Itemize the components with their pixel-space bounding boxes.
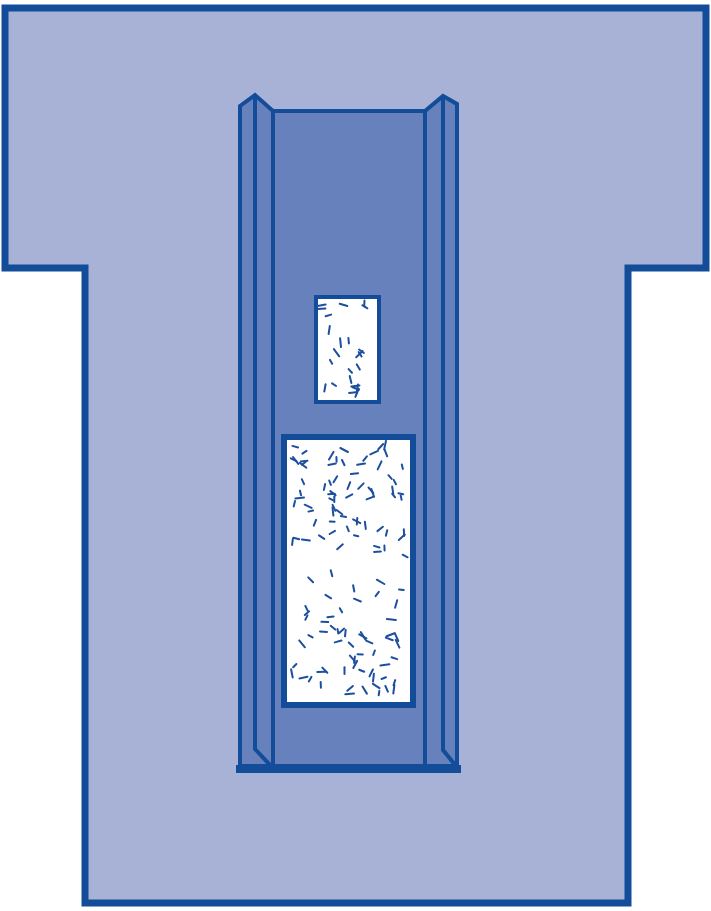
- speckle-dash: [357, 464, 365, 465]
- speckle-dash: [324, 384, 325, 391]
- speckle-dash: [351, 473, 358, 474]
- speckle-dash: [318, 309, 326, 310]
- speckle-dash: [341, 516, 346, 517]
- speckle-dash: [379, 691, 380, 695]
- speckle-dash: [345, 630, 346, 636]
- speckle-dash: [327, 616, 333, 617]
- speckle-dash: [373, 674, 374, 682]
- large-fenestration: [284, 437, 413, 705]
- speckle-dash: [294, 538, 300, 539]
- speckle-dash: [402, 465, 403, 469]
- speckle-dash: [393, 685, 394, 693]
- speckle-dash: [324, 484, 325, 490]
- speckle-dash: [351, 385, 359, 386]
- speckle-dash: [308, 511, 313, 512]
- surgical-drape-diagram: [0, 0, 711, 911]
- speckle-dash: [340, 338, 341, 347]
- small-fenestration: [316, 297, 379, 402]
- speckle-dash: [301, 461, 308, 462]
- speckle-dash: [328, 464, 336, 465]
- speckle-dash: [295, 498, 304, 499]
- speckle-dash: [329, 326, 330, 334]
- large-fenestration-area: [284, 437, 413, 705]
- speckle-dash: [399, 589, 404, 590]
- speckle-dash: [292, 539, 293, 545]
- speckle-dash: [353, 585, 354, 591]
- speckle-dash: [401, 495, 402, 499]
- speckle-dash: [302, 539, 310, 540]
- speckle-dash: [320, 631, 327, 632]
- speckle-dash: [381, 664, 390, 665]
- speckle-dash: [345, 694, 354, 695]
- panel-bottom-bar: [236, 765, 461, 773]
- speckle-dash: [386, 530, 387, 536]
- speckle-dash: [387, 619, 396, 620]
- speckle-dash: [357, 518, 358, 525]
- speckle-dash: [354, 535, 358, 536]
- speckle-dash: [294, 501, 295, 507]
- speckle-dash: [300, 491, 301, 496]
- drape-canvas: [0, 0, 711, 911]
- speckle-dash: [338, 629, 339, 633]
- speckle-dash: [354, 657, 355, 663]
- speckle-dash: [349, 392, 356, 393]
- speckle-dash: [365, 522, 366, 529]
- speckle-dash: [348, 338, 349, 343]
- speckle-dash: [398, 493, 403, 494]
